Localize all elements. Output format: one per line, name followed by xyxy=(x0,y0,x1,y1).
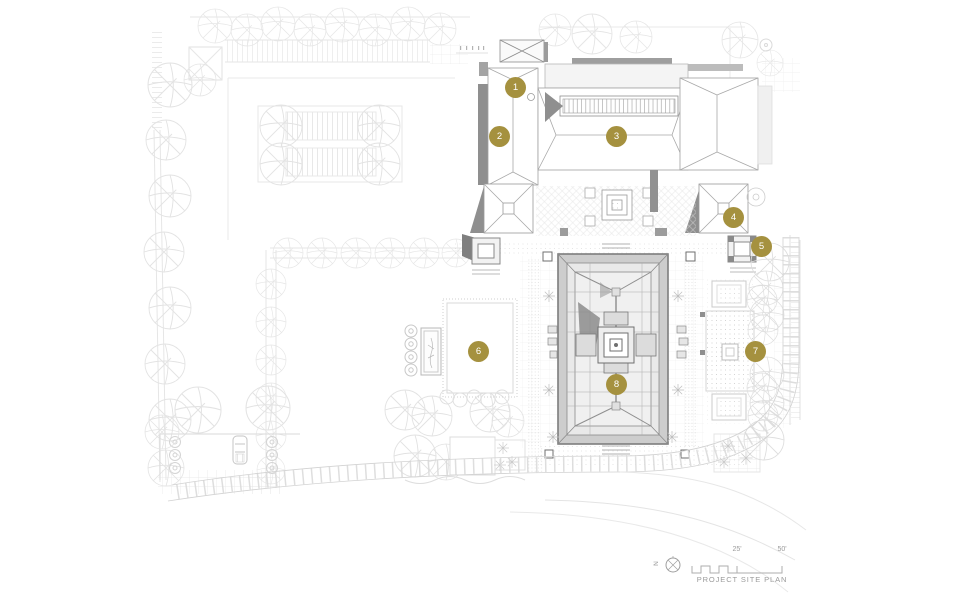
plan-marker-7: 7 xyxy=(745,341,766,362)
scale-label-25: 25' xyxy=(727,546,747,553)
plan-marker-3: 3 xyxy=(606,126,627,147)
site-plan-page: 1 2 3 4 5 6 7 8 N 25' 50' PROJECT SITE P… xyxy=(0,0,960,596)
scale-label-50: 50' xyxy=(772,546,792,553)
conservatory xyxy=(543,244,688,454)
plan-marker-2: 2 xyxy=(489,126,510,147)
plan-marker-3-label: 3 xyxy=(614,132,619,142)
plan-marker-4-label: 4 xyxy=(731,213,736,223)
plan-marker-2-label: 2 xyxy=(497,132,502,142)
plan-marker-5: 5 xyxy=(751,236,772,257)
site-plan-drawing xyxy=(0,0,960,596)
plan-caption: PROJECT SITE PLAN xyxy=(664,575,820,584)
plan-marker-8: 8 xyxy=(606,374,627,395)
plan-marker-1-label: 1 xyxy=(513,83,518,93)
car xyxy=(233,436,247,464)
plan-marker-6: 6 xyxy=(468,341,489,362)
plan-marker-4: 4 xyxy=(723,207,744,228)
plan-marker-6-label: 6 xyxy=(476,347,481,357)
plan-marker-7-label: 7 xyxy=(753,347,758,357)
plan-marker-1: 1 xyxy=(505,77,526,98)
plan-marker-5-label: 5 xyxy=(759,242,764,252)
north-label: N xyxy=(653,561,660,566)
plan-marker-8-label: 8 xyxy=(614,380,619,390)
